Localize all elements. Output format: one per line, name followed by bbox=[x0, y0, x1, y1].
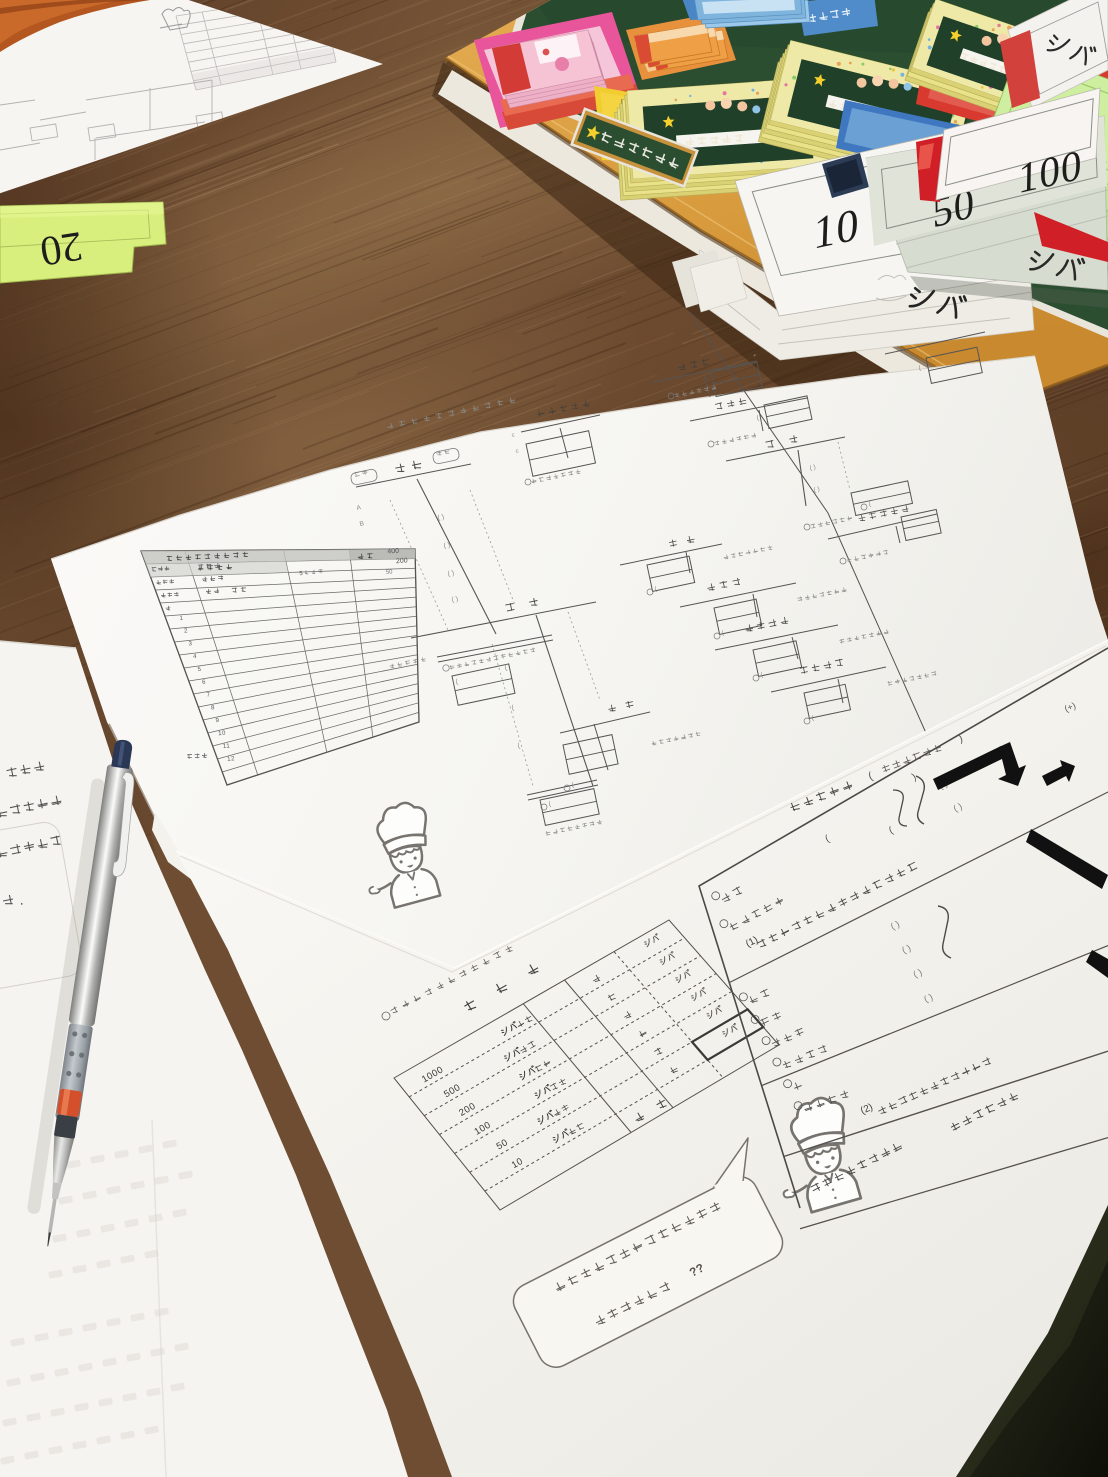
svg-text:10: 10 bbox=[813, 198, 861, 260]
svg-text:200: 200 bbox=[396, 557, 408, 565]
svg-text:6: 6 bbox=[202, 680, 207, 686]
svg-text:20: 20 bbox=[37, 222, 86, 274]
svg-text:3: 3 bbox=[188, 641, 193, 647]
svg-text:7: 7 bbox=[206, 692, 211, 698]
svg-text:10: 10 bbox=[218, 731, 226, 738]
svg-text:12: 12 bbox=[227, 756, 235, 763]
svg-text:8: 8 bbox=[211, 705, 216, 711]
svg-text:4: 4 bbox=[193, 654, 198, 660]
svg-text:1: 1 bbox=[179, 616, 184, 622]
svg-text:400: 400 bbox=[387, 548, 399, 556]
svg-text:50: 50 bbox=[386, 569, 394, 575]
svg-text:11: 11 bbox=[223, 743, 231, 750]
svg-text:2: 2 bbox=[184, 628, 189, 634]
svg-text:5: 5 bbox=[197, 667, 202, 673]
svg-text:9: 9 bbox=[215, 718, 220, 724]
